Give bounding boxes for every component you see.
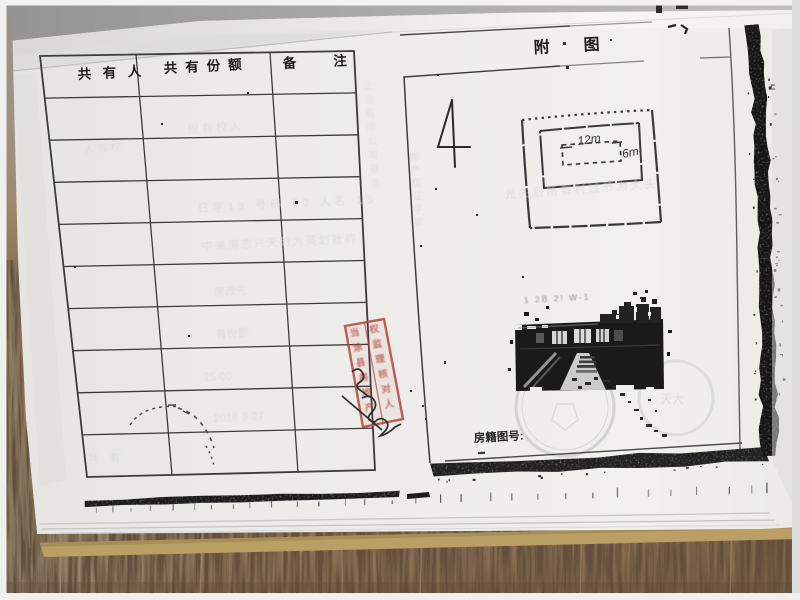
svg-text:25-00: 25-00	[204, 371, 233, 384]
svg-text:天大: 天大	[660, 392, 684, 406]
